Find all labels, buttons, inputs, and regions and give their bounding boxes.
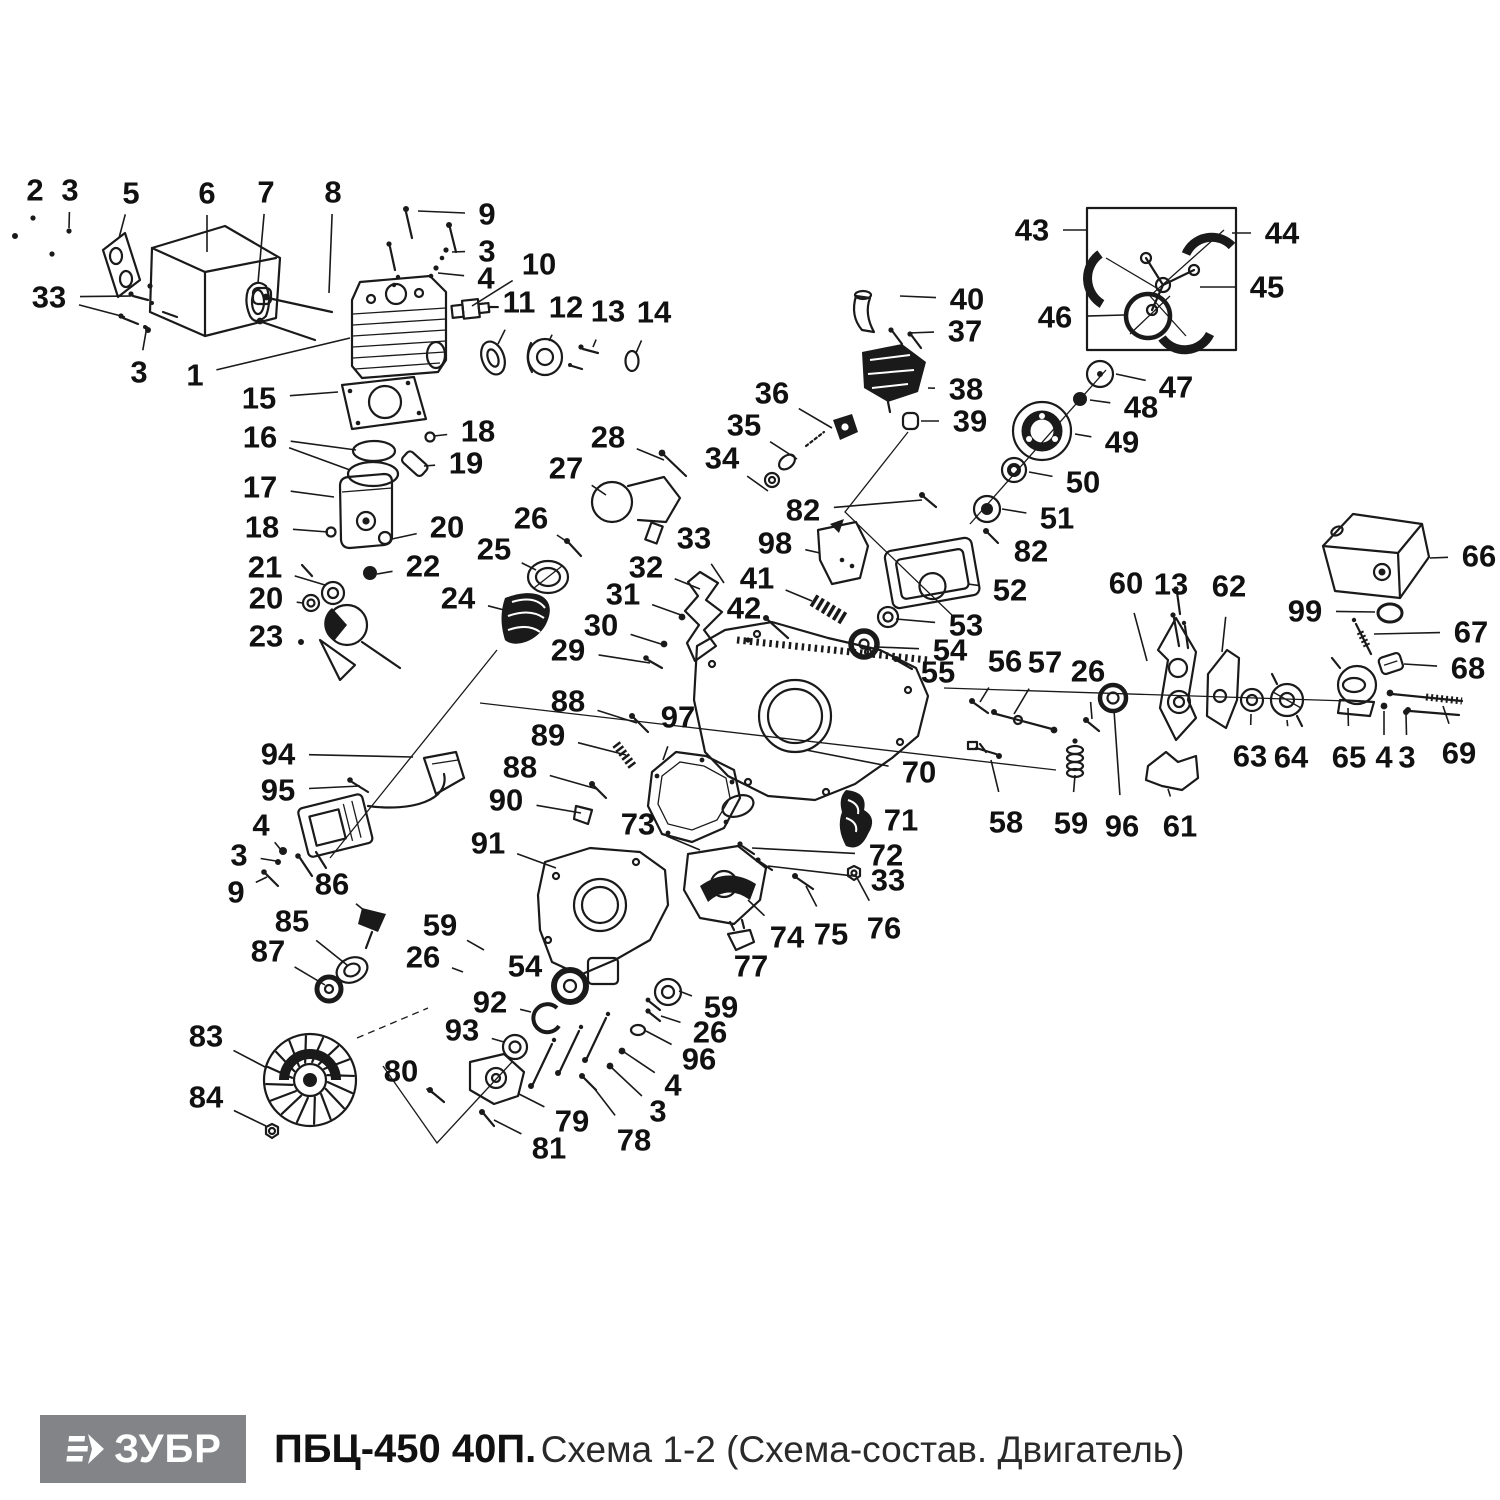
part-label-54: 54 — [508, 949, 543, 984]
leader-line-68 — [1404, 664, 1437, 666]
chain-tensioner-sketch — [643, 572, 722, 668]
leader-line-96 — [646, 1031, 672, 1045]
bracket-86-sketch — [358, 908, 386, 948]
leader-line-49 — [1075, 434, 1091, 437]
screw-82-right-sketch — [983, 528, 998, 543]
part-label-3: 3 — [230, 838, 247, 873]
part-label-96: 96 — [1105, 809, 1139, 844]
part-label-78: 78 — [617, 1123, 651, 1158]
bolts-69-sketch — [1381, 690, 1462, 715]
bolt-56-sketch — [969, 698, 988, 713]
leader-line-83 — [234, 1050, 268, 1068]
leader-line-3 — [612, 1068, 642, 1096]
scheme-name: Схема 1-2 (Схема-состав. Двигатель) — [541, 1429, 1185, 1470]
filter-cover-66-sketch — [1323, 514, 1429, 598]
crankcase-half-91-sketch — [538, 848, 668, 984]
leader-line-31 — [652, 605, 681, 615]
part-label-87: 87 — [251, 934, 285, 969]
clip-58-sketch — [968, 742, 1002, 759]
cylinder-bolts-sketch — [386, 206, 456, 287]
leader-line-26 — [1091, 702, 1092, 719]
leader-line-58 — [991, 760, 999, 792]
nut-84-sketch — [266, 1124, 278, 1138]
leader-line-87 — [295, 967, 325, 985]
leader-line-40 — [900, 296, 936, 298]
part-label-67: 67 — [1454, 615, 1488, 650]
grommet-39-sketch — [903, 413, 918, 429]
leader-line-57 — [1014, 689, 1029, 714]
leader-line-32 — [675, 579, 700, 589]
part-label-50: 50 — [1066, 465, 1100, 500]
part-label-46: 46 — [1038, 300, 1072, 335]
part-label-81: 81 — [532, 1131, 566, 1166]
leader-line-22 — [377, 571, 393, 574]
leader-line-79 — [519, 1094, 544, 1107]
part-label-42: 42 — [727, 591, 761, 626]
zubr-logo-text: ЗУБР — [114, 1427, 222, 1472]
part-label-5: 5 — [122, 176, 139, 211]
ring-96-right-sketch — [1100, 685, 1126, 711]
intake-flange-sketch — [528, 339, 562, 375]
leader-line-52 — [968, 584, 979, 586]
part-label-90: 90 — [489, 783, 523, 818]
exploded-diagram: 2356789341011121314333115161718212023181… — [0, 0, 1500, 1500]
gasket-97-sketch — [648, 752, 740, 842]
part-label-99: 99 — [1288, 594, 1322, 629]
leader-line-53 — [896, 619, 935, 622]
leader-line-67 — [1374, 633, 1440, 634]
part-label-20: 20 — [249, 581, 283, 616]
part-label-3: 3 — [1398, 740, 1415, 775]
oil-pump-sketch — [592, 477, 680, 544]
part-label-83: 83 — [189, 1019, 223, 1054]
leader-line-1 — [216, 338, 350, 370]
axis-line — [944, 688, 1348, 701]
part-label-58: 58 — [989, 805, 1023, 840]
muffler-screws-sketch — [118, 291, 154, 329]
leader-line-51 — [1002, 509, 1026, 513]
part-label-45: 45 — [1250, 270, 1284, 305]
part-label-1: 1 — [186, 358, 203, 393]
part-label-48: 48 — [1124, 390, 1158, 425]
fuel-filter-sketch — [765, 414, 858, 487]
leader-line-99 — [1336, 611, 1375, 612]
oil-seal-sketch — [528, 561, 568, 593]
spring-41-sketch — [813, 600, 846, 620]
part-label-56: 56 — [988, 644, 1022, 679]
part-label-98: 98 — [758, 526, 792, 561]
part-label-80: 80 — [384, 1054, 418, 1089]
part-label-24: 24 — [441, 581, 476, 616]
part-label-15: 15 — [242, 381, 276, 416]
leader-line-18 — [434, 435, 447, 437]
zubr-logo-icon — [64, 1427, 108, 1471]
part-label-60: 60 — [1109, 566, 1143, 601]
leader-line-72 — [752, 848, 855, 853]
leader-line-47 — [1116, 374, 1146, 380]
leader-line-11 — [498, 330, 505, 344]
part-label-18: 18 — [245, 510, 279, 545]
leader-line-85 — [316, 940, 347, 965]
part-label-27: 27 — [549, 451, 583, 486]
intake-elbow-65-sketch — [1332, 658, 1376, 716]
part-label-61: 61 — [1163, 809, 1197, 844]
model-name: ПБЦ-450 40П. — [274, 1427, 536, 1471]
part-label-77: 77 — [734, 949, 768, 984]
ring-87-sketch — [317, 977, 341, 1001]
part-label-33: 33 — [871, 863, 905, 898]
leader-line-20 — [392, 534, 417, 539]
leader-line-17 — [291, 491, 334, 497]
leader-line-48 — [1090, 400, 1110, 403]
leader-line-9 — [418, 211, 465, 213]
part-label-38: 38 — [949, 372, 983, 407]
leader-line-21 — [295, 576, 325, 585]
ring-53-sketch — [878, 607, 898, 627]
pump-housing-52-sketch — [884, 537, 981, 609]
flywheel-fin — [328, 1082, 352, 1093]
part-label-75: 75 — [814, 917, 848, 952]
leader-line-4 — [438, 273, 464, 276]
bracket-38-sketch — [862, 327, 926, 412]
part-label-68: 68 — [1451, 651, 1485, 686]
plate-98-sketch — [818, 519, 868, 584]
muffler-gasket-sketch — [103, 233, 140, 297]
leader-line-26 — [661, 1016, 681, 1022]
part-label-29: 29 — [551, 633, 585, 668]
part-label-62: 62 — [1212, 569, 1246, 604]
part-label-19: 19 — [449, 446, 483, 481]
clutch-assembly-sketch — [1087, 208, 1236, 350]
flywheel-fin — [314, 1097, 315, 1123]
part-label-32: 32 — [629, 550, 663, 585]
part-label-26: 26 — [406, 940, 440, 975]
part-label-66: 66 — [1462, 539, 1496, 574]
part-label-40: 40 — [950, 282, 984, 317]
leader-line-66 — [1430, 557, 1448, 558]
leader-line-84 — [234, 1111, 266, 1127]
leader-line-60 — [1134, 613, 1147, 661]
leader-line-70 — [806, 750, 889, 766]
part-label-88: 88 — [551, 684, 585, 719]
part-label-10: 10 — [522, 247, 556, 282]
vent-hose-40-sketch — [854, 291, 874, 332]
part-label-86: 86 — [315, 867, 349, 902]
part-label-69: 69 — [1442, 736, 1476, 771]
leader-line-59 — [467, 940, 484, 950]
part-label-89: 89 — [531, 718, 565, 753]
leader-line-13 — [593, 340, 596, 347]
leader-line-36 — [799, 409, 832, 428]
pump-screw-sketch — [659, 450, 686, 476]
part-labels: 2356789341011121314333115161718212023181… — [26, 173, 1496, 1166]
part-label-3: 3 — [61, 173, 78, 208]
part-label-13: 13 — [1154, 567, 1188, 602]
leader-line-16 — [289, 448, 350, 470]
leader-line-97 — [663, 746, 668, 760]
part-label-59: 59 — [423, 908, 457, 943]
clip-77-sketch — [728, 920, 754, 950]
construction-line — [357, 1008, 428, 1038]
part-label-21: 21 — [248, 550, 282, 585]
part-label-82: 82 — [786, 493, 820, 528]
part-label-82: 82 — [1014, 534, 1048, 569]
part-label-18: 18 — [461, 414, 495, 449]
leader-line-98 — [805, 550, 820, 553]
part-label-59: 59 — [704, 990, 738, 1025]
leader-line-29 — [599, 655, 650, 663]
leader-line-9 — [256, 877, 267, 882]
leader-line-94 — [309, 755, 413, 757]
leader-line-3 — [1406, 714, 1407, 735]
part-label-91: 91 — [471, 826, 505, 861]
part-label-12: 12 — [549, 290, 583, 325]
leader-line-95 — [309, 786, 360, 789]
leader-line-78 — [594, 1088, 615, 1115]
leader-line-81 — [494, 1120, 521, 1134]
needle-67-sketch — [1352, 618, 1371, 654]
part-label-73: 73 — [621, 807, 655, 842]
part-label-84: 84 — [189, 1080, 224, 1115]
bolt-75-sketch — [792, 873, 813, 889]
part-label-97: 97 — [661, 700, 695, 735]
part-label-30: 30 — [584, 608, 618, 643]
leader-line-54 — [877, 647, 919, 649]
flange-bolt-sketch — [568, 344, 598, 369]
leader-line-50 — [1029, 472, 1053, 476]
part-label-52: 52 — [993, 573, 1027, 608]
zubr-logo: ЗУБР — [40, 1415, 246, 1483]
part-label-44: 44 — [1265, 216, 1300, 251]
leader-line-33 — [79, 305, 125, 317]
small-fasteners-topleft-sketch — [12, 215, 154, 333]
leader-line-90 — [537, 805, 582, 813]
part-label-23: 23 — [249, 619, 283, 654]
part-label-4: 4 — [1375, 740, 1393, 775]
part-label-4: 4 — [664, 1068, 682, 1103]
leader-line-19 — [424, 465, 435, 466]
part-label-63: 63 — [1233, 739, 1267, 774]
part-label-47: 47 — [1159, 370, 1193, 405]
spring-59-right-sketch — [1067, 738, 1083, 777]
leader-line-55 — [903, 664, 908, 665]
part-label-39: 39 — [953, 404, 987, 439]
leader-line-18 — [293, 529, 328, 532]
flywheel-fin — [282, 1096, 301, 1114]
flywheel-fin — [326, 1089, 344, 1108]
leader-line-3 — [261, 859, 276, 862]
part-label-26: 26 — [514, 501, 548, 536]
part-label-4: 4 — [252, 808, 270, 843]
leader-line-76 — [856, 876, 869, 901]
part-label-33: 33 — [32, 280, 66, 315]
part-label-2: 2 — [26, 173, 43, 208]
part-label-71: 71 — [884, 803, 918, 838]
footer-bar: ЗУБР ПБЦ-450 40П. Схема 1-2 (Схема-соста… — [0, 1398, 1500, 1500]
part-label-7: 7 — [257, 175, 274, 210]
part-label-26: 26 — [1071, 654, 1105, 689]
part-label-55: 55 — [921, 655, 955, 690]
carburetor-sketch — [1158, 586, 1196, 740]
part-label-76: 76 — [867, 911, 901, 946]
pump-housing-sketch — [684, 846, 766, 924]
leader-line-3 — [143, 326, 147, 350]
part-label-95: 95 — [261, 773, 295, 808]
leader-line-20 — [297, 602, 303, 603]
grommet-59-bottom-sketch — [646, 979, 681, 1010]
part-label-11: 11 — [503, 285, 536, 320]
leader-line-15 — [290, 392, 338, 396]
part-label-93: 93 — [445, 1013, 479, 1048]
leader-line-92 — [520, 1009, 531, 1012]
leader-line-62 — [1222, 617, 1226, 652]
part-label-9: 9 — [227, 875, 244, 910]
nut-76-sketch — [848, 866, 860, 880]
grip-71-sketch — [840, 790, 872, 848]
leader-line-73 — [667, 836, 700, 850]
flywheel-fin — [266, 1084, 292, 1085]
leader-line-41 — [786, 590, 812, 601]
part-label-43: 43 — [1015, 213, 1049, 248]
leader-line-14 — [636, 340, 642, 353]
part-label-20: 20 — [430, 510, 464, 545]
flywheel-fin — [271, 1091, 296, 1100]
leader-line-4 — [624, 1052, 655, 1073]
leader-line-33 — [768, 866, 857, 876]
oring-99-sketch — [1378, 604, 1402, 622]
part-label-16: 16 — [243, 420, 277, 455]
part-label-57: 57 — [1028, 645, 1062, 680]
leader-line-64 — [1287, 720, 1288, 726]
part-label-70: 70 — [902, 755, 936, 790]
leader-lines — [69, 211, 1449, 1134]
part-label-6: 6 — [198, 176, 215, 211]
leader-line-8 — [329, 214, 332, 293]
seal-ring-14-sketch — [626, 351, 639, 371]
part-label-36: 36 — [755, 376, 789, 411]
ring-63-sketch — [1241, 689, 1263, 711]
part-label-49: 49 — [1105, 425, 1139, 460]
spark-plug-sketch — [451, 297, 499, 320]
part-label-22: 22 — [406, 549, 440, 584]
circlip-92-sketch — [533, 1004, 559, 1032]
leader-line-46 — [1086, 315, 1124, 316]
buffer-spring-sketch — [502, 593, 550, 644]
flywheel-sketch — [264, 1034, 356, 1126]
part-label-17: 17 — [243, 470, 277, 505]
part-label-13: 13 — [591, 294, 625, 329]
part-label-34: 34 — [705, 441, 740, 476]
page: 2356789341011121314333115161718212023181… — [0, 0, 1500, 1500]
leader-line-93 — [492, 1039, 504, 1043]
cap-68-sketch — [1378, 652, 1404, 675]
leader-line-61 — [1168, 789, 1170, 797]
part-label-33: 33 — [677, 521, 711, 556]
plate-61-sketch — [1146, 752, 1198, 790]
part-label-65: 65 — [1332, 740, 1366, 775]
part-label-4: 4 — [477, 261, 495, 296]
part-label-59: 59 — [1054, 806, 1088, 841]
part-label-51: 51 — [1040, 501, 1074, 536]
part-label-35: 35 — [727, 408, 761, 443]
leader-line-82 — [834, 500, 922, 507]
leader-line-96 — [1114, 710, 1120, 795]
leader-line-30 — [631, 634, 661, 644]
part-label-37: 37 — [948, 314, 982, 349]
leader-line-26 — [452, 968, 463, 972]
part-label-74: 74 — [770, 920, 805, 955]
flywheel-fin — [297, 1098, 308, 1122]
pin-26-right-sketch — [1083, 717, 1099, 731]
flywheel-fin — [321, 1094, 330, 1119]
leader-line-4 — [275, 842, 281, 850]
rod-57-sketch — [991, 709, 1057, 733]
cylinder-sketch — [352, 276, 446, 378]
bolt-33-bottom-sketch — [755, 857, 772, 870]
part-label-88: 88 — [503, 750, 537, 785]
part-label-64: 64 — [1274, 740, 1309, 775]
part-label-9: 9 — [478, 197, 495, 232]
part-label-25: 25 — [477, 532, 511, 567]
footer-title: ПБЦ-450 40П. Схема 1-2 (Схема-состав. Дв… — [274, 1427, 1184, 1472]
leader-line-37 — [908, 332, 934, 333]
part-label-8: 8 — [324, 175, 341, 210]
part-label-3: 3 — [130, 355, 147, 390]
part-label-28: 28 — [591, 420, 625, 455]
bearing-54-bottom-sketch — [554, 970, 586, 1002]
part-label-94: 94 — [261, 737, 296, 772]
intake-gasket-sketch — [477, 338, 509, 377]
part-label-14: 14 — [637, 295, 672, 330]
leader-line-16 — [291, 441, 356, 450]
leader-line-33 — [80, 296, 131, 297]
gasket-62-sketch — [1207, 650, 1239, 728]
